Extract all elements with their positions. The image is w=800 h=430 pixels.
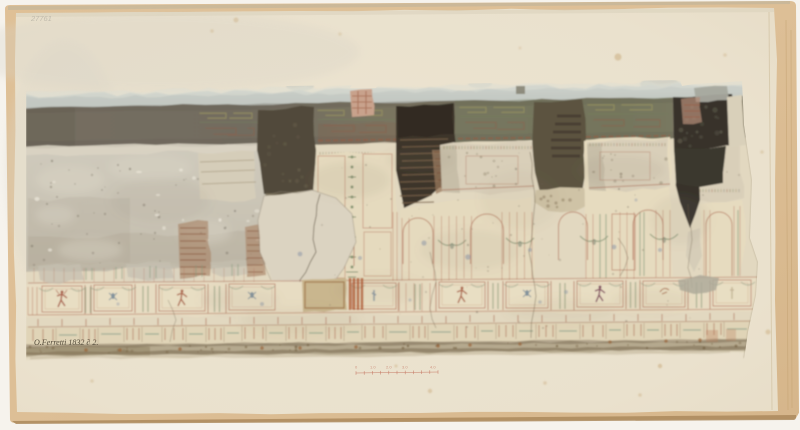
svg-text:1.0: 1.0 [370,365,376,370]
svg-text:2.0: 2.0 [386,365,392,370]
svg-text:27761: 27761 [30,14,52,23]
svg-text:3.0: 3.0 [402,365,408,370]
svg-text:O.Ferretti 1832 ∂ 2.: O.Ferretti 1832 ∂ 2. [34,338,98,347]
svg-text:4.0: 4.0 [430,365,436,370]
